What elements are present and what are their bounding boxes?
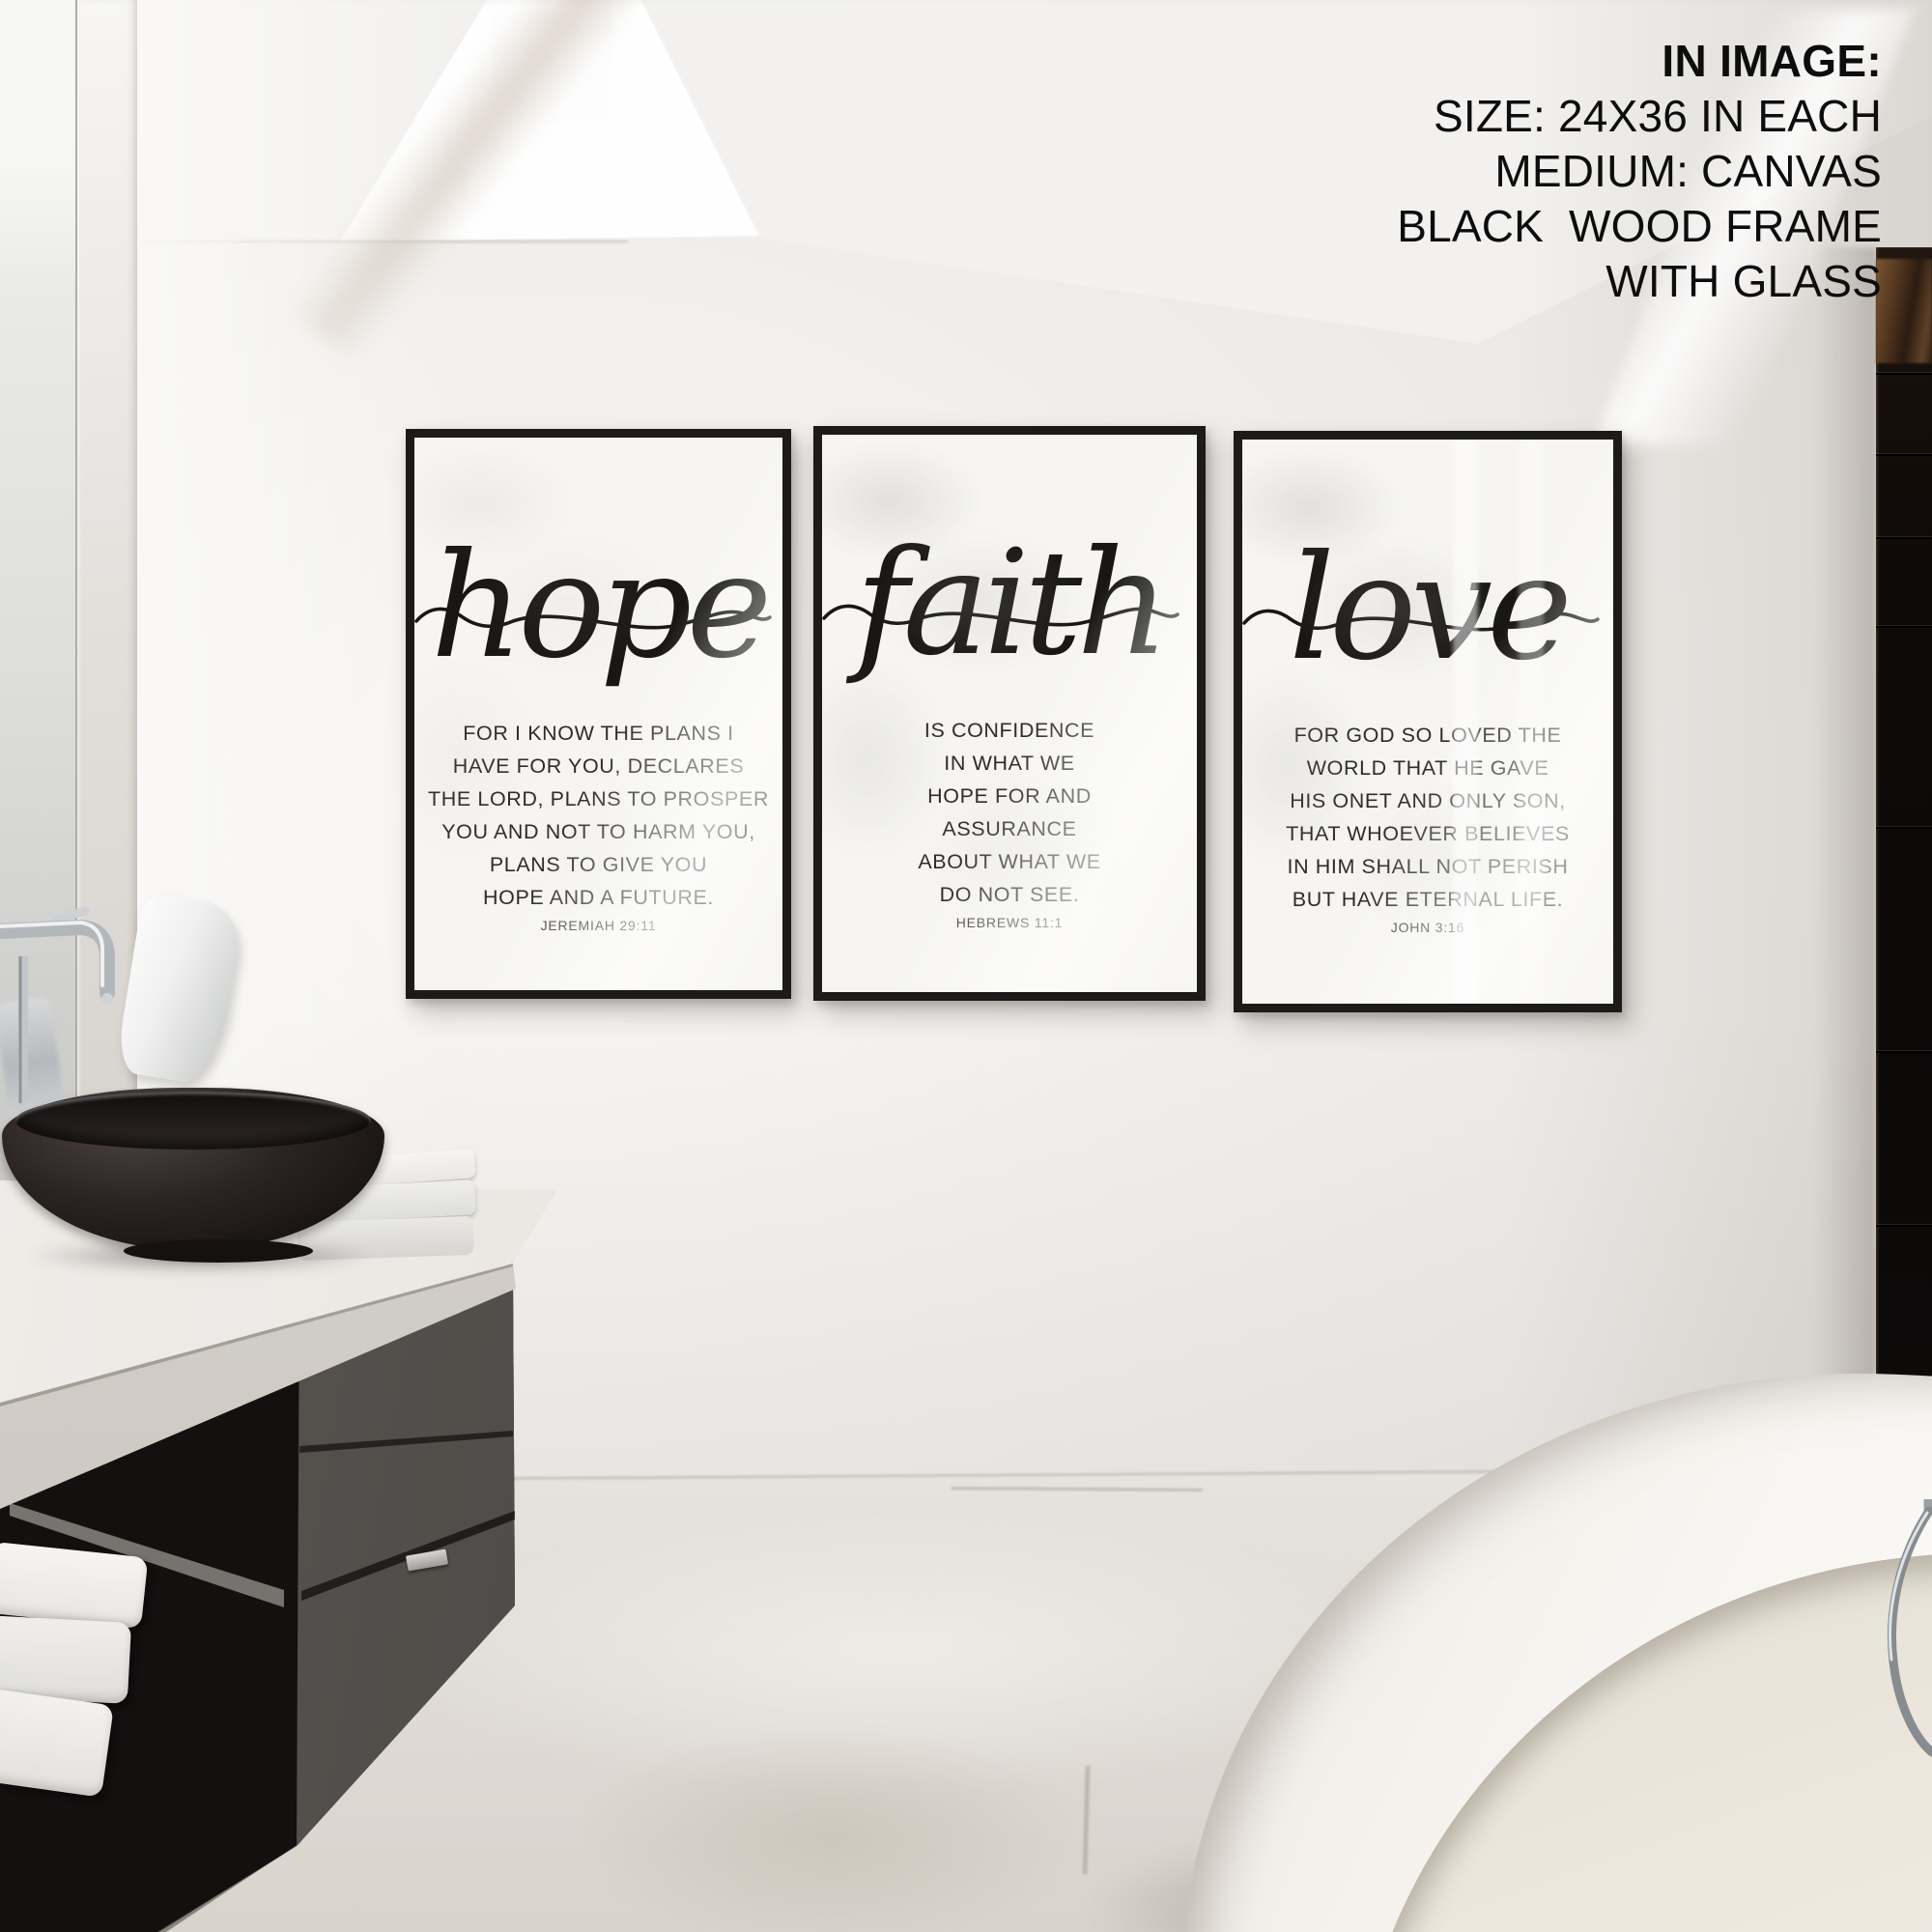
- verse-line: ASSURANCE: [828, 812, 1191, 845]
- overlay-heading: IN IMAGE:: [1397, 33, 1882, 89]
- poster-verse: FOR I KNOW THE PLANS I HAVE FOR YOU, DEC…: [420, 717, 777, 914]
- poster-reference: JEREMIAH 29:11: [414, 918, 782, 933]
- shelf-towels: [0, 1688, 114, 1797]
- overlay-line: BLACK WOOD FRAME: [1397, 199, 1882, 254]
- cabinet-shelf: [1876, 827, 1932, 829]
- poster-love: love FOR GOD SO LOVED THE WORLD THAT HE …: [1234, 431, 1622, 1012]
- overlay-line: WITH GLASS: [1397, 254, 1882, 309]
- verse-line: HOPE AND A FUTURE.: [420, 881, 777, 914]
- verse-line: ABOUT WHAT WE: [828, 845, 1191, 878]
- verse-line: IN WHAT WE: [828, 747, 1191, 780]
- poster-reference: JOHN 3:16: [1242, 920, 1613, 935]
- verse-line: HOPE FOR AND: [828, 780, 1191, 812]
- verse-line: DO NOT SEE.: [828, 878, 1191, 911]
- poster-reference: HEBREWS 11:1: [822, 915, 1197, 930]
- cabinet-shelf: [1876, 626, 1932, 628]
- verse-line: PLANS TO GIVE YOU: [420, 848, 777, 881]
- verse-line: BUT HAVE ETERNAL LIFE.: [1248, 883, 1607, 916]
- bathroom-product-photo: hope FOR I KNOW THE PLANS I HAVE FOR YOU…: [0, 0, 1932, 1932]
- poster-word: love: [1242, 483, 1613, 734]
- verse-line: THE LORD, PLANS TO PROSPER: [420, 782, 777, 815]
- verse-line: WORLD THAT HE GAVE: [1248, 752, 1607, 784]
- cabinet-shelf: [1876, 454, 1932, 456]
- overlay-line: SIZE: 24X36 IN EACH: [1397, 89, 1882, 144]
- verse-line: FOR GOD SO LOVED THE: [1248, 719, 1607, 752]
- product-info-overlay: IN IMAGE: SIZE: 24X36 IN EACH MEDIUM: CA…: [1397, 33, 1882, 309]
- shelf-towels: [0, 1542, 148, 1630]
- cabinet-shelf: [1876, 1225, 1932, 1227]
- tall-cabinet: [1876, 247, 1932, 1397]
- verse-line: YOU AND NOT TO HARM YOU,: [420, 815, 777, 848]
- poster-verse: FOR GOD SO LOVED THE WORLD THAT HE GAVE …: [1248, 719, 1607, 916]
- shower-hose: [1840, 1499, 1932, 1818]
- verse-line: FOR I KNOW THE PLANS I: [420, 717, 777, 750]
- cabinet-shelf: [1876, 373, 1932, 375]
- verse-line: IS CONFIDENCE: [828, 714, 1191, 747]
- mirror-reflection: [0, 0, 75, 290]
- poster-canvas: hope FOR I KNOW THE PLANS I HAVE FOR YOU…: [414, 438, 782, 990]
- floor-stain: [580, 1729, 1082, 1932]
- overlay-line: MEDIUM: CANVAS: [1397, 144, 1882, 199]
- verse-line: IN HIM SHALL NOT PERISH: [1248, 850, 1607, 883]
- poster-faith: faith IS CONFIDENCE IN WHAT WE HOPE FOR …: [813, 426, 1206, 1001]
- poster-canvas: faith IS CONFIDENCE IN WHAT WE HOPE FOR …: [822, 435, 1197, 992]
- verse-line: THAT WHOEVER BELIEVES: [1248, 817, 1607, 850]
- vessel-sink-base: [124, 1239, 313, 1263]
- verse-line: HAVE FOR YOU, DECLARES: [420, 750, 777, 782]
- cabinet-shelf: [1876, 537, 1932, 539]
- cabinet-shadow: [1814, 247, 1876, 1397]
- cabinet-wood-reflection: [1876, 259, 1932, 363]
- verse-line: HIS ONET AND ONLY SON,: [1248, 784, 1607, 817]
- poster-word: faith: [822, 478, 1197, 729]
- poster-word: hope: [414, 481, 782, 732]
- poster-canvas: love FOR GOD SO LOVED THE WORLD THAT HE …: [1242, 440, 1613, 1004]
- poster-verse: IS CONFIDENCE IN WHAT WE HOPE FOR AND AS…: [828, 714, 1191, 911]
- cabinet-shelf: [1876, 1051, 1932, 1053]
- shelf-towels: [0, 1615, 131, 1704]
- poster-hope: hope FOR I KNOW THE PLANS I HAVE FOR YOU…: [406, 429, 791, 999]
